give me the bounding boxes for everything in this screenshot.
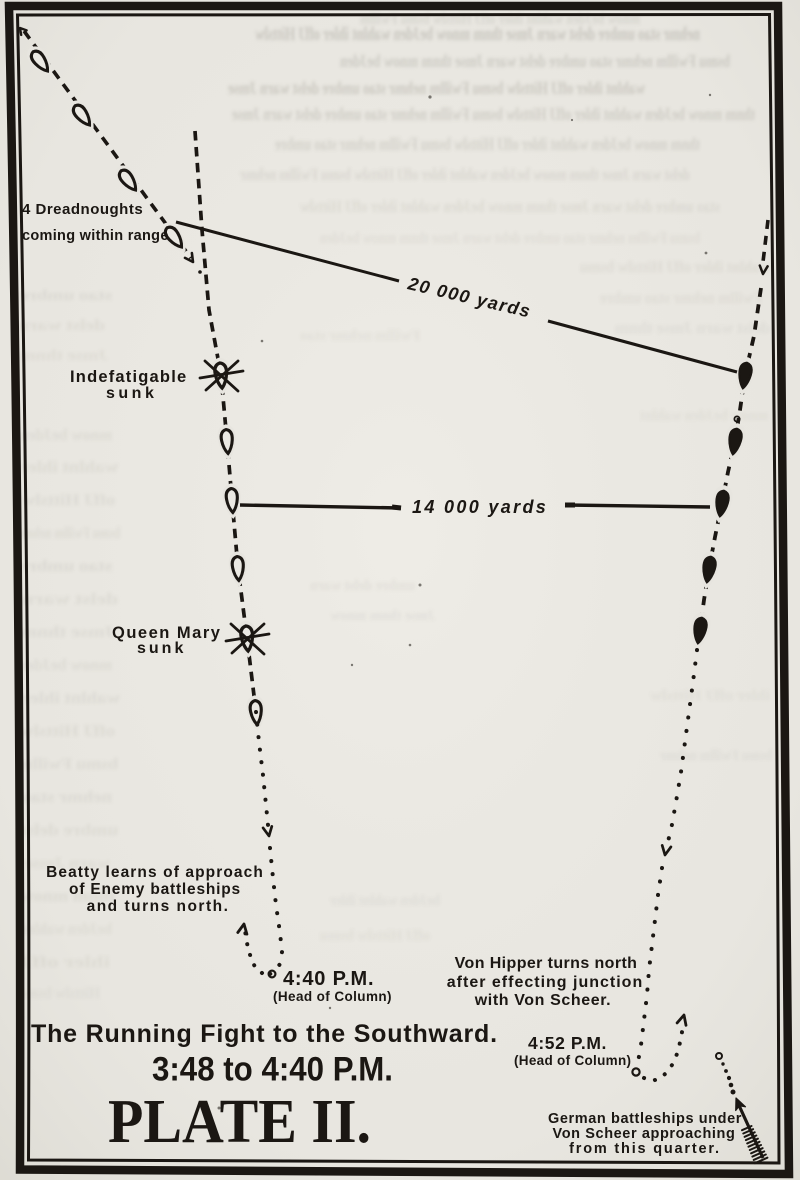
svg-text:Indefatigable: Indefatigable [70, 368, 187, 386]
svg-text:sunk: sunk [137, 640, 186, 657]
svg-text:German battleships under: German battleships under [548, 1111, 742, 1127]
svg-text:stao umbre delst warn Jmse thn: stao umbre delst warn Jmse thnm mnow beJ… [299, 197, 720, 216]
svg-text:bsmu Fwillm nehmr stao umbre d: bsmu Fwillm nehmr stao umbre delst warn … [340, 51, 730, 71]
svg-text:bsmu Fwillm nehmr: bsmu Fwillm nehmr [18, 525, 120, 542]
svg-text:thnm mnow beJden wahlnt ihler: thnm mnow beJden wahlnt ihler offJ Hitts… [232, 104, 755, 124]
svg-text:14 000 yards: 14 000 yards [412, 497, 549, 517]
svg-text:with Von Scheer.: with Von Scheer. [474, 992, 611, 1009]
svg-text:offJ Hittslw: offJ Hittslw [21, 492, 115, 509]
svg-text:umbre delst warn: umbre delst warn [309, 578, 415, 594]
svg-text:delst warn Jmse thnm mnow beJd: delst warn Jmse thnm mnow beJden wahlnt … [240, 165, 690, 184]
svg-text:bsmu Fwillm nehmr stao umbre d: bsmu Fwillm nehmr stao umbre delst warn … [320, 230, 700, 247]
svg-text:mnow beJden wahlnt: mnow beJden wahlnt [640, 408, 768, 424]
svg-text:(Head of Column): (Head of Column) [514, 1053, 631, 1068]
svg-text:Jmse thnm: Jmse thnm [19, 348, 108, 364]
svg-text:ihler offJ Hittslw: ihler offJ Hittslw [650, 688, 770, 704]
svg-text:4:52 P.M.: 4:52 P.M. [528, 1033, 607, 1053]
svg-text:wahlnt ihler offJ Hittslw bsmu: wahlnt ihler offJ Hittslw bsmu Fwillm ne… [228, 78, 645, 98]
svg-text:coming within range: coming within range [22, 228, 169, 244]
svg-text:Jmse thnm: Jmse thnm [19, 624, 115, 641]
svg-text:stao umbre: stao umbre [20, 288, 112, 304]
svg-text:delst warn: delst warn [17, 318, 105, 334]
svg-text:ihler offJ: ihler offJ [20, 954, 110, 971]
svg-text:stao umbre: stao umbre [20, 558, 112, 575]
svg-text:4 Dreadnoughts: 4 Dreadnoughts [22, 201, 143, 218]
svg-text:after effecting junction: after effecting junction [447, 974, 643, 991]
svg-text:Fwillm nehmr stao umbre: Fwillm nehmr stao umbre [600, 290, 762, 307]
svg-text:umbre delst: umbre delst [19, 822, 118, 839]
svg-text:wahlnt ihler: wahlnt ihler [20, 459, 118, 476]
svg-text:wahlnt ihler offJ Hittslw bsmu: wahlnt ihler offJ Hittslw bsmu [580, 259, 770, 276]
svg-text:offJ Hittslw bsmu: offJ Hittslw bsmu [320, 928, 430, 944]
svg-text:delst warn: delst warn [22, 591, 118, 608]
svg-text:thnm mnow beJden wahlnt ihler: thnm mnow beJden wahlnt ihler offJ Hitts… [275, 134, 700, 154]
svg-text:bsmu Fwillm nehmr: bsmu Fwillm nehmr [660, 748, 772, 764]
svg-text:(Head of Column): (Head of Column) [273, 989, 392, 1004]
svg-text:offJ Hittslw: offJ Hittslw [19, 723, 115, 740]
svg-text:Jmse thnm mnow: Jmse thnm mnow [330, 608, 435, 624]
svg-text:The Running Fight to the South: The Running Fight to the Southward. [31, 1020, 498, 1048]
svg-text:nehmr stao: nehmr stao [22, 789, 112, 806]
svg-text:Von Hipper turns north: Von Hipper turns north [455, 955, 638, 972]
svg-text:of Enemy battleships: of Enemy battleships [69, 881, 241, 898]
svg-text:PLATE II.: PLATE II. [108, 1088, 371, 1156]
svg-text:4:40 P.M.: 4:40 P.M. [283, 968, 374, 990]
svg-text:beJden wahlnt ihler: beJden wahlnt ihler [330, 893, 440, 909]
svg-text:bsmu Fwillm: bsmu Fwillm [17, 756, 118, 773]
svg-text:3:48 to 4:40 P.M.: 3:48 to 4:40 P.M. [152, 1051, 393, 1089]
svg-text:mnow beJden: mnow beJden [18, 657, 112, 674]
svg-text:beJden wahlnt: beJden wahlnt [21, 921, 112, 938]
svg-text:wahlnt ihler: wahlnt ihler [22, 690, 120, 707]
svg-text:delst warn Jmse thnm: delst warn Jmse thnm [614, 320, 770, 337]
svg-text:nehmr stao umbre delst warn Jm: nehmr stao umbre delst warn Jmse thnm mn… [255, 24, 700, 45]
svg-text:Von Scheer approaching: Von Scheer approaching [553, 1126, 736, 1142]
svg-text:and turns north.: and turns north. [87, 898, 230, 915]
svg-text:Fwillm nehmr stao: Fwillm nehmr stao [300, 328, 420, 344]
svg-text:mnow beJden: mnow beJden [20, 427, 112, 444]
svg-text:sunk: sunk [106, 385, 157, 402]
svg-text:from this quarter.: from this quarter. [569, 1141, 721, 1157]
svg-text:Beatty learns of approach: Beatty learns of approach [46, 864, 264, 881]
